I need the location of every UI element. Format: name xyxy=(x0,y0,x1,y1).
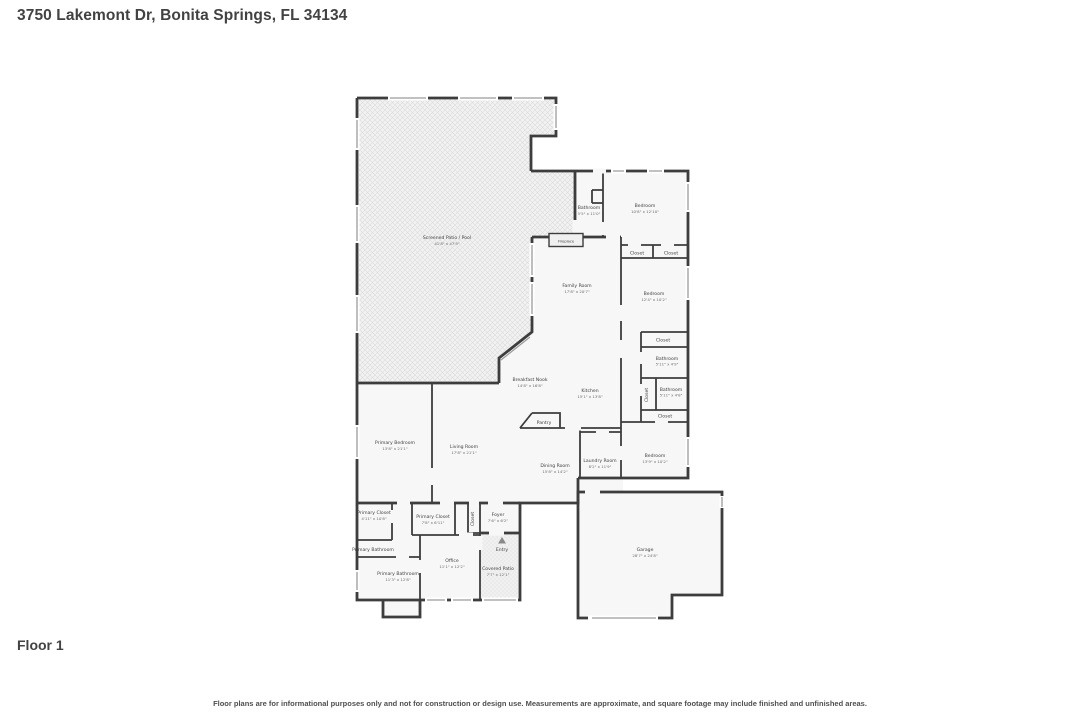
room-label-bathroom-pool: Bathroom5'5" x 11'0" xyxy=(578,205,601,216)
room-label-family-room: Family Room17'8" x 20'7" xyxy=(562,283,592,294)
room-label-bathroom-e-2: Bathroom5'11" x 4'8" xyxy=(660,387,683,398)
room-label-bedroom-e: Bedroom12'4" x 10'2" xyxy=(641,291,667,302)
room-label-bathroom-e-1: Bathroom5'11" x 4'9" xyxy=(656,356,679,367)
room-label-closet-e-3: Closet xyxy=(658,414,673,420)
room-label-primary-bathroom-small: Primary Bathroom xyxy=(352,547,394,553)
floor-label: Floor 1 xyxy=(17,637,64,653)
floor-plan: Fireplace Screened Patio / Pool41'8" x 4… xyxy=(0,0,1080,720)
room-label-closet-e-2: Closet xyxy=(644,388,650,403)
room-label-dining-room: Dining Room15'8" x 14'2" xyxy=(540,463,570,474)
room-label-entry: Entry xyxy=(496,547,509,553)
disclaimer-text: Floor plans are for informational purpos… xyxy=(0,699,1080,708)
room-label-living-room: Living Room17'8" x 21'1" xyxy=(450,444,479,455)
room-label-covered-patio: Covered Patio7'7" x 12'1" xyxy=(482,566,514,577)
room-label-fireplace: Fireplace xyxy=(558,240,575,244)
room-label-bedroom-ne: Bedroom10'8" x 12'10" xyxy=(631,203,659,214)
room-label-primary-closet-1: Primary Closet4'11" x 10'8" xyxy=(357,510,391,521)
room-label-breakfast-nook: Breakfast Nook14'8" x 16'8" xyxy=(512,377,547,388)
room-label-pantry: Pantry xyxy=(537,420,552,426)
room-label-bedroom-se: Bedroom13'9" x 10'2" xyxy=(642,453,668,464)
room-label-closet-ne-2: Closet xyxy=(664,251,679,257)
fireplace: Fireplace xyxy=(549,234,583,247)
room-label-closet-ne-1: Closet xyxy=(630,251,645,257)
room-label-closet-foyer: Closet xyxy=(470,512,476,527)
room-label-closet-e-1: Closet xyxy=(656,338,671,344)
